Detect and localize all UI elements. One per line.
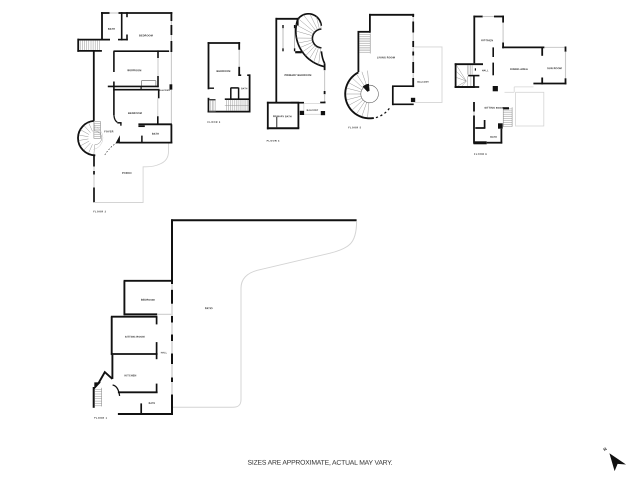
svg-text:BATH: BATH xyxy=(490,136,497,139)
svg-text:HALL: HALL xyxy=(482,69,489,72)
svg-text:FOYER: FOYER xyxy=(104,130,113,133)
svg-text:PRIMARY BEDROOM: PRIMARY BEDROOM xyxy=(285,74,312,77)
svg-text:BEDROOM: BEDROOM xyxy=(128,112,142,115)
svg-text:BALCONY: BALCONY xyxy=(417,81,429,84)
svg-text:BATH: BATH xyxy=(241,87,248,90)
svg-text:BATH: BATH xyxy=(149,402,156,405)
svg-text:BEDROOM: BEDROOM xyxy=(217,70,231,73)
svg-text:SITTING ROOM: SITTING ROOM xyxy=(125,336,145,339)
svg-text:BATH: BATH xyxy=(108,28,115,31)
svg-text:BEDROOM: BEDROOM xyxy=(139,34,153,37)
svg-text:KITCHEN: KITCHEN xyxy=(481,39,493,42)
svg-text:SIZES ARE APPROXIMATE, ACTUAL: SIZES ARE APPROXIMATE, ACTUAL MAY VARY. xyxy=(248,460,393,467)
svg-text:KITCHEN: KITCHEN xyxy=(125,374,137,377)
svg-text:FLOOR 2: FLOOR 2 xyxy=(93,210,106,213)
svg-text:PATIO: PATIO xyxy=(205,307,213,310)
svg-text:HALL: HALL xyxy=(161,351,168,354)
svg-text:FLOOR 4: FLOOR 4 xyxy=(267,140,280,143)
svg-text:BATH: BATH xyxy=(152,133,159,136)
svg-text:BALCONY: BALCONY xyxy=(158,89,170,92)
svg-text:PORCH: PORCH xyxy=(122,172,132,175)
svg-text:FLOOR 6: FLOOR 6 xyxy=(474,153,487,156)
svg-text:PRIMARY BATH: PRIMARY BATH xyxy=(273,115,292,118)
svg-text:SITTING ROOM: SITTING ROOM xyxy=(484,107,504,110)
svg-text:BEDROOM: BEDROOM xyxy=(141,299,155,302)
svg-text:FLOOR 1: FLOOR 1 xyxy=(94,417,107,420)
svg-text:SUN ROOM: SUN ROOM xyxy=(547,67,562,70)
svg-text:FLOOR 3: FLOOR 3 xyxy=(207,121,220,124)
svg-text:BALCONY: BALCONY xyxy=(307,109,319,112)
svg-text:BEDROOM: BEDROOM xyxy=(128,69,142,72)
svg-text:FLOOR 5: FLOOR 5 xyxy=(348,126,361,129)
svg-text:LIVING ROOM: LIVING ROOM xyxy=(377,56,395,59)
svg-text:DINING AREA: DINING AREA xyxy=(510,68,528,71)
